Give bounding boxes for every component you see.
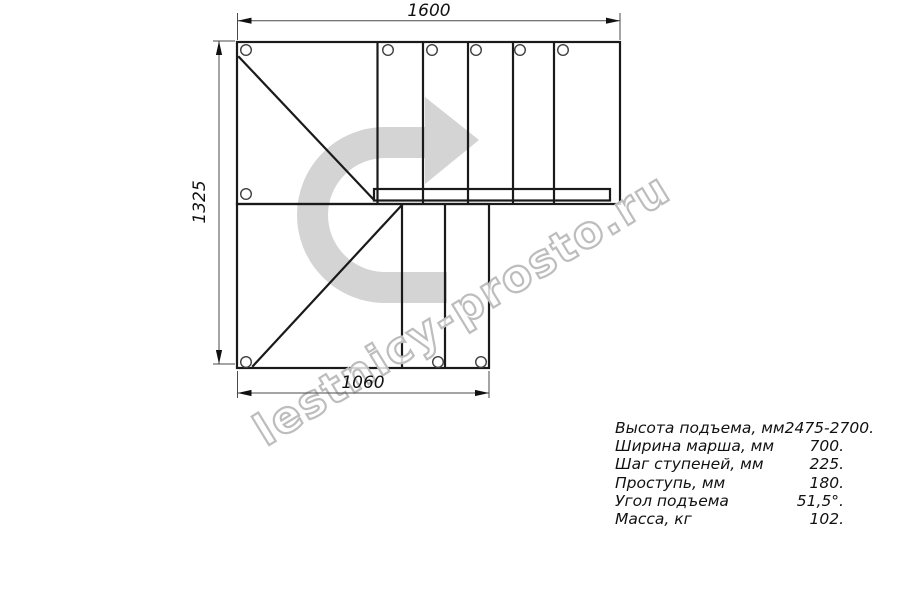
spec-label: Масса, кг — [615, 510, 692, 528]
spec-label: Ширина марша, мм — [615, 437, 774, 455]
upper-flight-steps — [378, 43, 555, 203]
dimension-left-depth-label: 1325 — [190, 180, 210, 223]
spec-value: 180. — [809, 474, 844, 492]
spec-row-mass: Масса, кг 102. — [615, 510, 844, 528]
spec-value: 225. — [809, 455, 844, 473]
stair-plan-page: lestnicy-prosto.ru 1600 1325 1060 — [0, 0, 900, 600]
spec-value: 2475-2700. — [785, 419, 874, 437]
dimension-top-width-label: 1600 — [407, 1, 450, 21]
spec-value: 700. — [809, 437, 844, 455]
spec-label: Высота подъема, мм — [615, 419, 785, 437]
u-turn-arrow-watermark-icon — [313, 97, 480, 288]
spec-row-rise-angle: Угол подъема 51,5°. — [615, 492, 844, 510]
spec-row-step-pitch: Шаг ступеней, мм 225. — [615, 455, 844, 473]
spec-value: 51,5°. — [797, 492, 844, 510]
spec-row-tread: Проступь, мм 180. — [615, 474, 844, 492]
spec-label: Шаг ступеней, мм — [615, 455, 764, 473]
dimension-bottom-width-label: 1060 — [341, 373, 384, 393]
stringer-bar — [374, 189, 610, 201]
spec-row-flight-width: Ширина марша, мм 700. — [615, 437, 844, 455]
dimension-left-depth: 1325 — [190, 41, 235, 364]
spec-label: Угол подъема — [615, 492, 729, 510]
spec-label: Проступь, мм — [615, 474, 725, 492]
specs-table: Высота подъема, мм 2475-2700. Ширина мар… — [615, 419, 844, 528]
spec-row-rise-height: Высота подъема, мм 2475-2700. — [615, 419, 844, 437]
dimension-top-width: 1600 — [238, 1, 621, 40]
spec-value: 102. — [809, 510, 844, 528]
